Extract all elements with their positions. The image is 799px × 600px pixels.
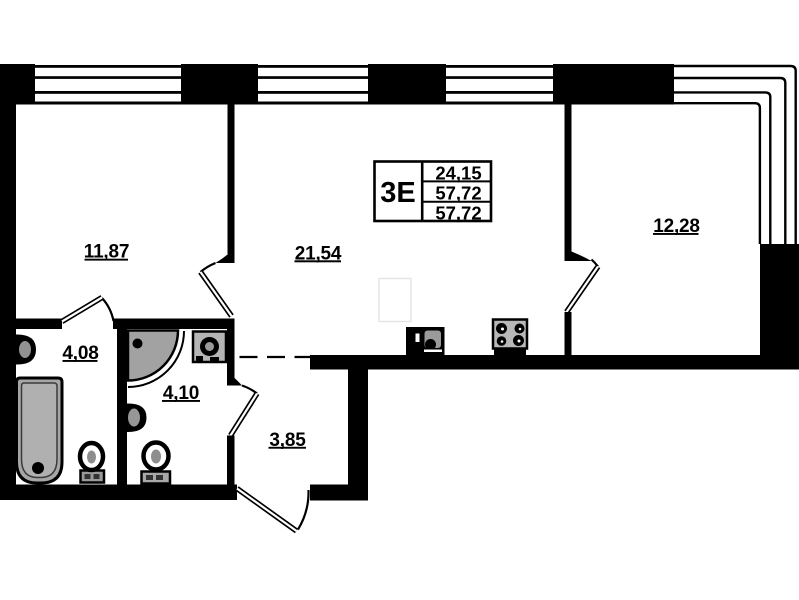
svg-text:57,72: 57,72 [435,183,481,204]
svg-text:24,15: 24,15 [435,163,481,184]
svg-text:3Е: 3Е [380,177,415,209]
svg-text:57,72: 57,72 [435,202,481,223]
